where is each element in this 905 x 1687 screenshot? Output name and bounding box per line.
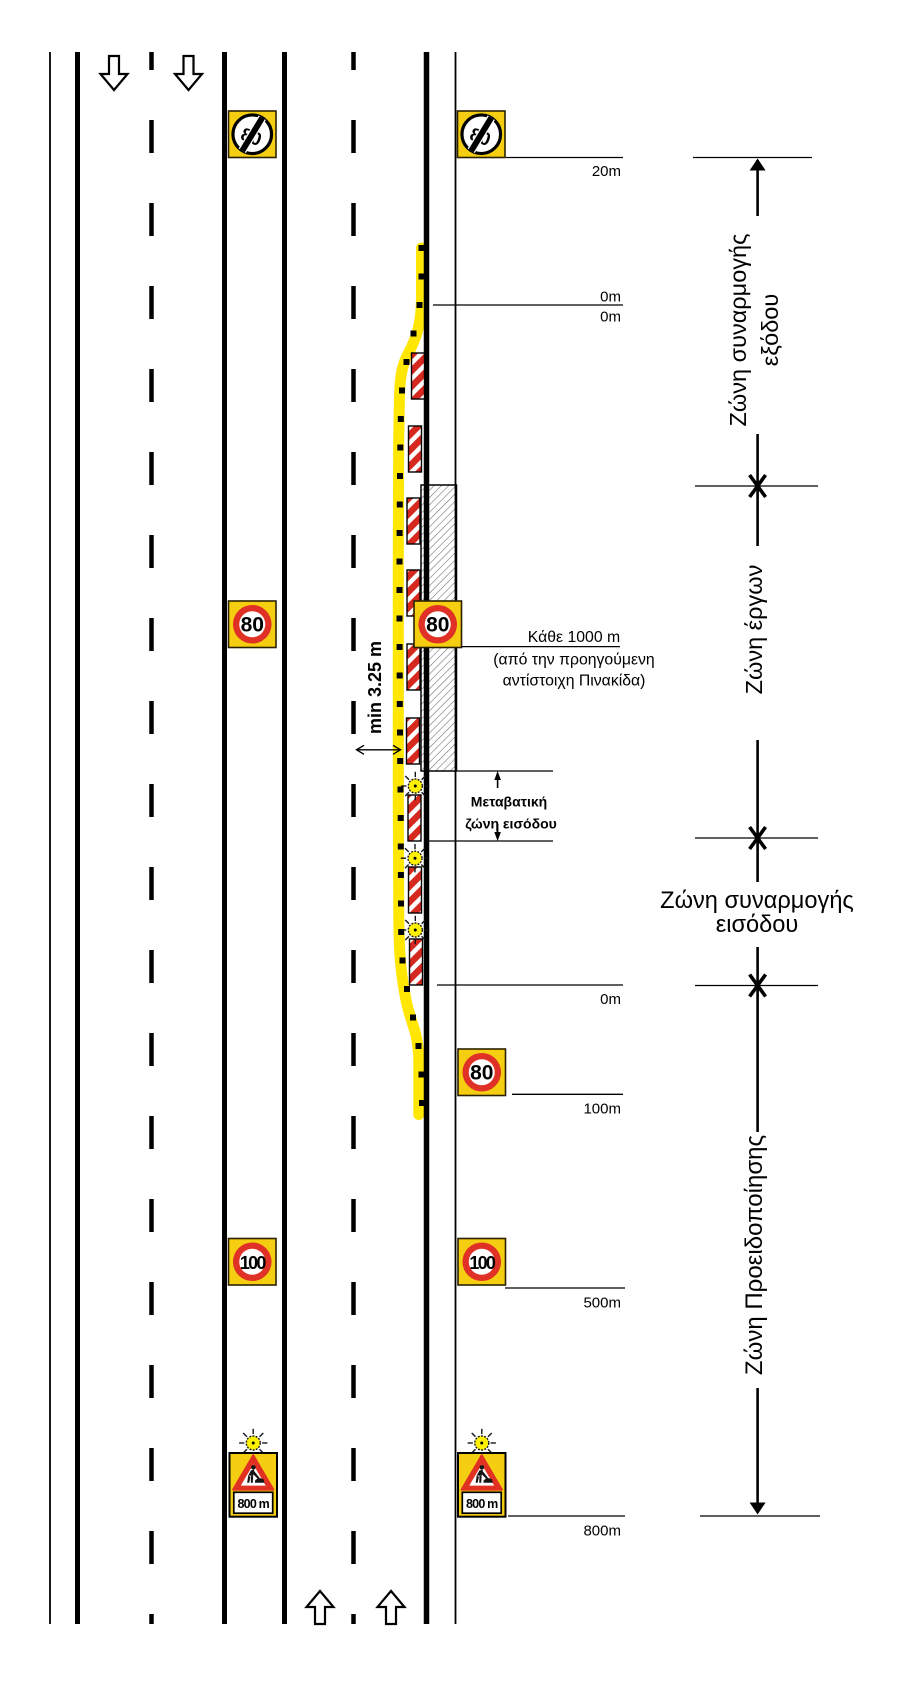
- svg-text:Ζώνη έργων: Ζώνη έργων: [741, 565, 767, 695]
- svg-text:Μεταβατική: Μεταβατική: [471, 794, 547, 810]
- svg-text:0m: 0m: [600, 289, 621, 306]
- svg-text:800 m: 800 m: [238, 1497, 270, 1511]
- svg-text:80: 80: [426, 614, 449, 637]
- svg-text:(από την προηγούμενη: (από την προηγούμενη: [493, 652, 654, 669]
- svg-text:min 3.25 m: min 3.25 m: [365, 641, 385, 734]
- svg-text:0m: 0m: [600, 309, 621, 326]
- svg-text:0m: 0m: [600, 991, 621, 1008]
- svg-text:20m: 20m: [592, 163, 621, 180]
- svg-text:100: 100: [469, 1253, 495, 1273]
- svg-text:εξόδου: εξόδου: [757, 294, 783, 366]
- svg-text:80: 80: [470, 1062, 493, 1085]
- svg-text:500m: 500m: [583, 1295, 621, 1312]
- svg-text:αντίστοιχη Πινακίδα): αντίστοιχη Πινακίδα): [503, 673, 646, 690]
- svg-text:80: 80: [241, 614, 264, 637]
- svg-text:Κάθε 1000 m: Κάθε 1000 m: [528, 629, 620, 646]
- svg-text:100m: 100m: [583, 1101, 621, 1118]
- svg-text:εισόδου: εισόδου: [716, 912, 799, 938]
- svg-text:800 m: 800 m: [466, 1497, 498, 1511]
- svg-text:Ζώνη Προειδοποίησης: Ζώνη Προειδοποίησης: [741, 1135, 768, 1375]
- svg-text:Ζώνη συναρμογής: Ζώνη συναρμογής: [725, 234, 751, 427]
- svg-text:100: 100: [240, 1253, 266, 1273]
- svg-text:800m: 800m: [583, 1523, 621, 1540]
- svg-text:Ζώνη συναρμογής: Ζώνη συναρμογής: [660, 888, 854, 914]
- svg-text:ζώνη εισόδου: ζώνη εισόδου: [465, 816, 557, 832]
